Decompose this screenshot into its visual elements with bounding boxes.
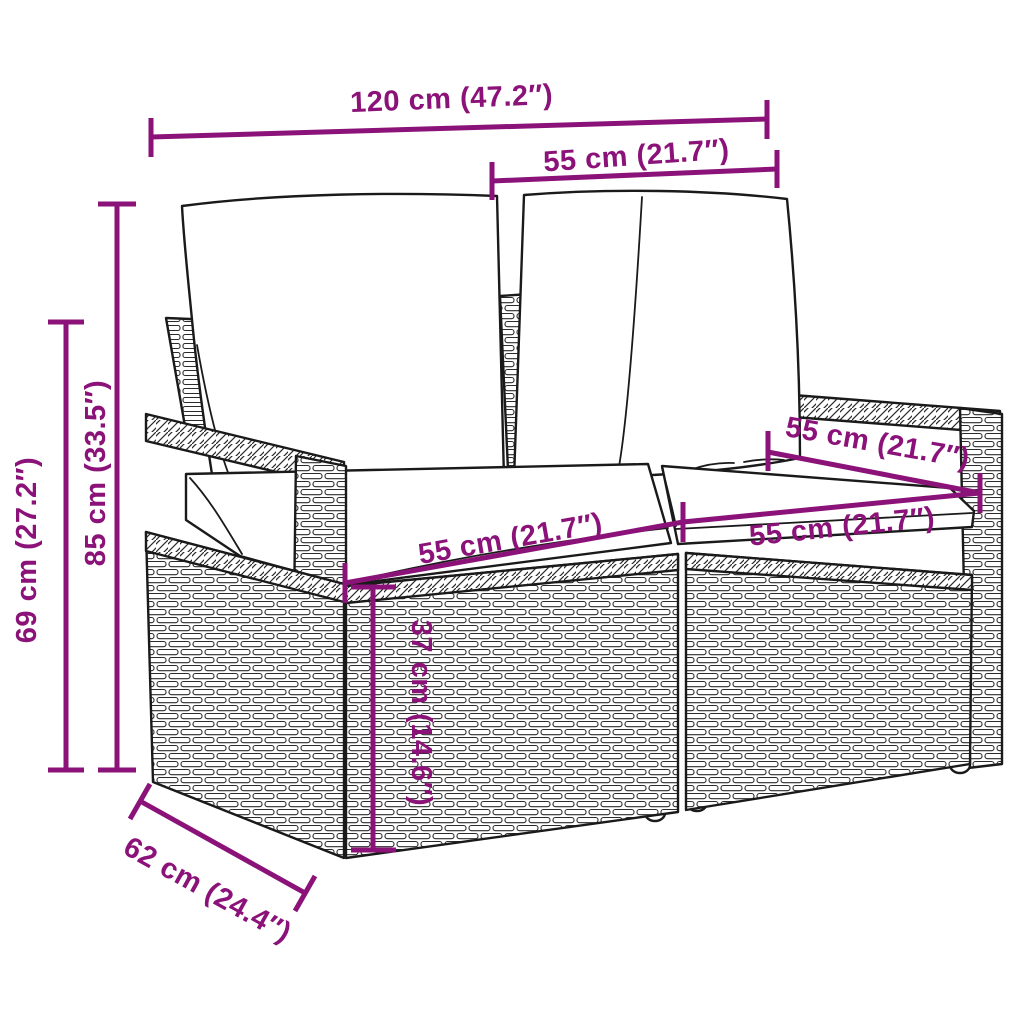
overall-width-label: 120 cm (47.2″) (350, 79, 554, 119)
back-cushion-right (514, 191, 800, 479)
armrest-height-label: 69 cm (27.2″) (11, 457, 43, 643)
sofa-dimension-drawing: 120 cm (47.2″) 55 cm (21.7″) 85 cm (33.5… (0, 0, 1024, 1024)
base-front-right (686, 553, 972, 810)
total-height-label: 85 cm (33.5″) (80, 380, 112, 566)
depth-label: 62 cm (24.4″) (118, 831, 297, 949)
dimension-diagram: 120 cm (47.2″) 55 cm (21.7″) 85 cm (33.5… (0, 0, 1024, 1024)
base-front-left (346, 554, 678, 858)
dim-armrest-height (48, 322, 84, 770)
seat-height-label: 37 cm (14.6″) (405, 620, 437, 806)
